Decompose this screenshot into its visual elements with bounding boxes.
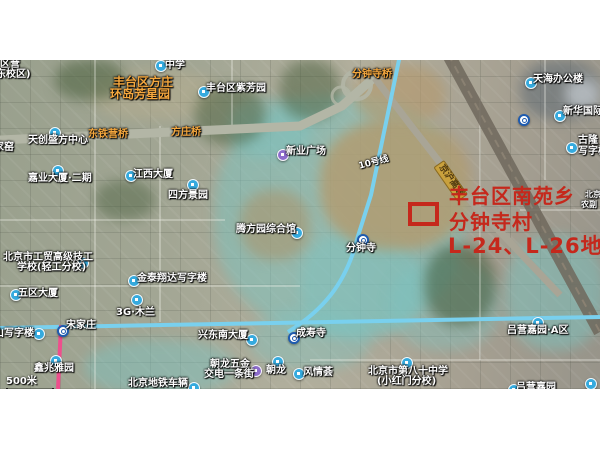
map-label: 方庄桥: [171, 128, 201, 138]
map-label: 学校(轻工分校): [17, 263, 86, 273]
map-label: 分钟寺桥: [352, 70, 392, 80]
map-label: 宋家庄: [66, 321, 96, 331]
map-label: 交电一条街: [204, 370, 254, 380]
poi-marker-icon[interactable]: [566, 142, 578, 154]
red-parcel-rectangle: [408, 202, 439, 226]
map-label: 兴东南大厦: [198, 331, 248, 341]
map-label: 嘉业大厦·二期: [28, 174, 92, 184]
map-label: 古隆: [578, 136, 598, 146]
map-label: 分钟寺: [346, 244, 376, 254]
screenshot-canvas: 区营东校区)中学丰台区方庄环岛芳星园丰台区紫芳园分钟寺桥天海办公楼新华国际广古隆…: [0, 0, 600, 450]
map-label: 北京地铁车辆: [128, 379, 188, 389]
terrain-patch: [280, 60, 340, 120]
map-label: 3G·木兰: [116, 308, 155, 318]
map-label: 新业广场: [286, 147, 326, 157]
annotation-district-line: 丰台区南苑乡: [449, 186, 575, 206]
map-label: 吕营嘉园: [516, 383, 556, 389]
map-label: 东校区): [0, 70, 31, 80]
map-label: 山写字楼: [0, 329, 34, 339]
map-label: 成寿寺: [296, 329, 326, 339]
map-label: 五区大厦: [18, 289, 58, 299]
map-scale-bar: 500米: [6, 372, 54, 389]
metro-station-icon[interactable]: [518, 114, 530, 126]
map-label: 东铁营桥: [88, 130, 128, 140]
satellite-map[interactable]: 区营东校区)中学丰台区方庄环岛芳星园丰台区紫芳园分钟寺桥天海办公楼新华国际广古隆…: [0, 60, 600, 389]
poi-marker-icon[interactable]: [33, 328, 45, 340]
map-label: 天海办公楼: [533, 75, 583, 85]
scale-label: 500米: [6, 376, 37, 387]
poi-marker-icon[interactable]: [131, 294, 143, 306]
interchange-loop-2: [332, 87, 350, 105]
terrain-patch: [95, 180, 155, 220]
map-label: 江西大厦: [133, 170, 173, 180]
map-label: 新华国际广: [563, 107, 600, 117]
annotation-parcel-line: L-24、L-26地块: [448, 236, 600, 257]
scale-bar-line: [6, 388, 54, 389]
map-label: 写字楼: [578, 147, 600, 157]
metro-line-10: [288, 60, 400, 332]
map-label: 中学: [165, 61, 185, 71]
poi-marker-icon[interactable]: [188, 382, 200, 389]
map-label: 家窑: [0, 143, 14, 153]
map-label: (小红门分校): [377, 377, 436, 387]
map-label: 四方景园: [168, 191, 208, 201]
map-label: 金泰翔达写字楼: [137, 274, 207, 284]
map-label: 天创盛方中心: [28, 136, 88, 146]
map-label: 腾方园综合馆: [236, 225, 296, 235]
terrain-patch: [250, 310, 370, 370]
map-label: 10号线: [358, 155, 390, 172]
poi-marker-icon[interactable]: [585, 378, 597, 389]
map-label: 丰台区紫芳园: [206, 84, 266, 94]
map-label: 农副: [581, 201, 597, 209]
annotation-village-line: 分钟寺村: [449, 212, 533, 232]
map-label: 吕营嘉园·A区: [507, 326, 569, 336]
map-label: 风情荟: [303, 368, 333, 378]
map-label: 环岛芳星园: [110, 88, 170, 100]
terrain-patch: [390, 260, 500, 350]
map-label: 朝龙: [266, 366, 286, 376]
map-label: 北京: [585, 191, 600, 199]
